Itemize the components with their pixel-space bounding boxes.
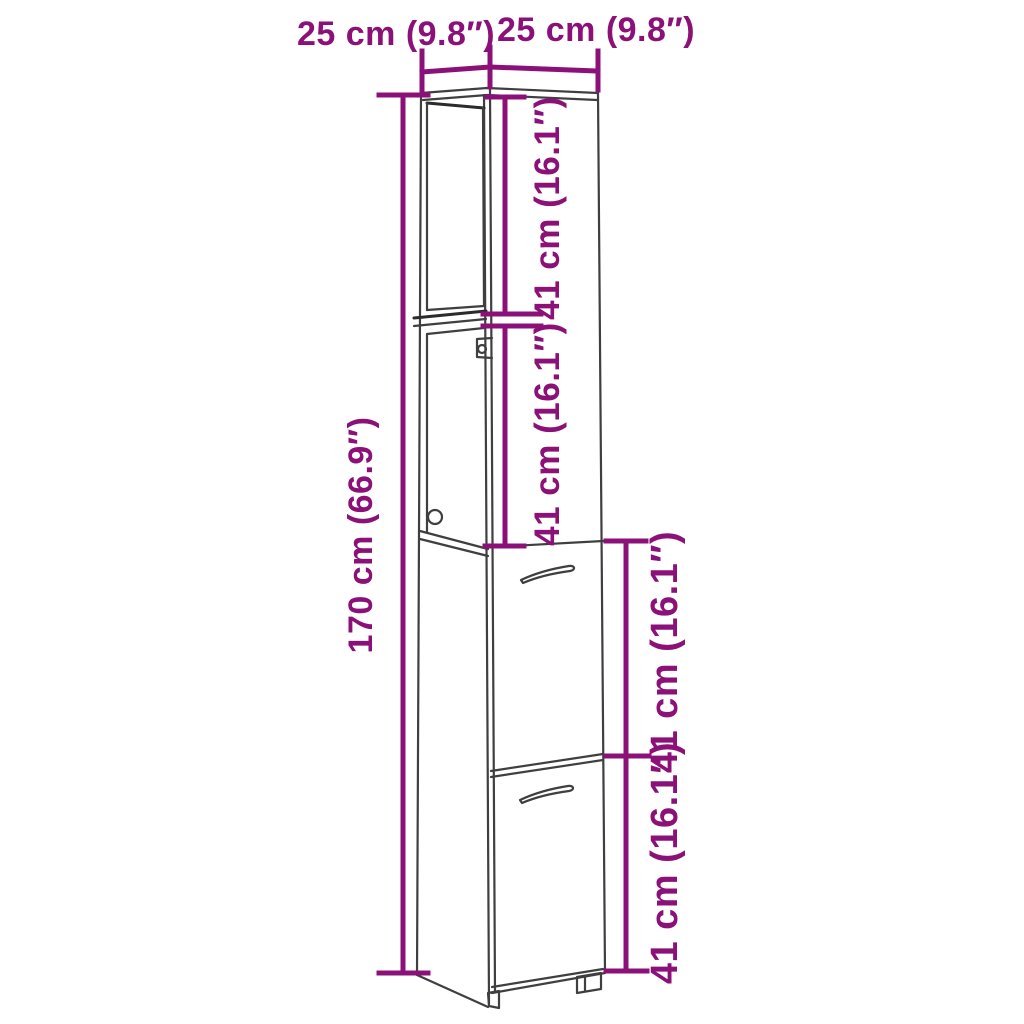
dimension-labels: 25 cm (9.8″) 25 cm (9.8″) 170 cm (66.9″)… xyxy=(297,11,695,984)
shelf-under-edge xyxy=(414,319,486,326)
label-top-right-width: 25 cm (9.8″) xyxy=(497,11,695,49)
label-lower-section-b: 41 cm (16.1″) xyxy=(644,742,686,984)
cabinet-top-edge xyxy=(421,88,598,93)
label-lower-section-a: 41 cm (16.1″) xyxy=(644,531,686,773)
label-total-height: 170 cm (66.9″) xyxy=(342,417,380,654)
door1-handle xyxy=(521,566,574,583)
door2-handle xyxy=(520,786,573,803)
corner-edge-front xyxy=(490,90,495,992)
shelf-pin-hole xyxy=(428,510,442,524)
mid-divider-top xyxy=(420,531,488,549)
cabinet-diagram-canvas: 25 cm (9.8″) 25 cm (9.8″) 170 cm (66.9″)… xyxy=(0,0,1024,1024)
width-dimension-line xyxy=(422,67,598,72)
foot-right xyxy=(577,973,601,993)
upper-compartment-right-inner xyxy=(483,108,484,306)
label-upper-section-a: 41 cm (16.1″) xyxy=(528,96,567,320)
label-top-left-width: 25 cm (9.8″) xyxy=(297,15,495,53)
cabinet-left-edge xyxy=(417,93,421,975)
side-panel-bottom-edge xyxy=(417,975,488,1007)
shelf-front-edge xyxy=(414,311,486,318)
dimension-diagram: 25 cm (9.8″) 25 cm (9.8″) 170 cm (66.9″)… xyxy=(0,0,1024,1024)
mid-divider-bottom xyxy=(420,539,488,556)
lower-compartment-top-inner xyxy=(427,328,484,334)
cabinet-right-edge xyxy=(598,93,605,972)
upper-compartment-top-inner xyxy=(427,103,484,108)
upper-compartment-bottom-inner xyxy=(427,306,484,310)
label-upper-section-b: 41 cm (16.1″) xyxy=(528,322,567,546)
door2-bottom-edge xyxy=(492,969,603,987)
